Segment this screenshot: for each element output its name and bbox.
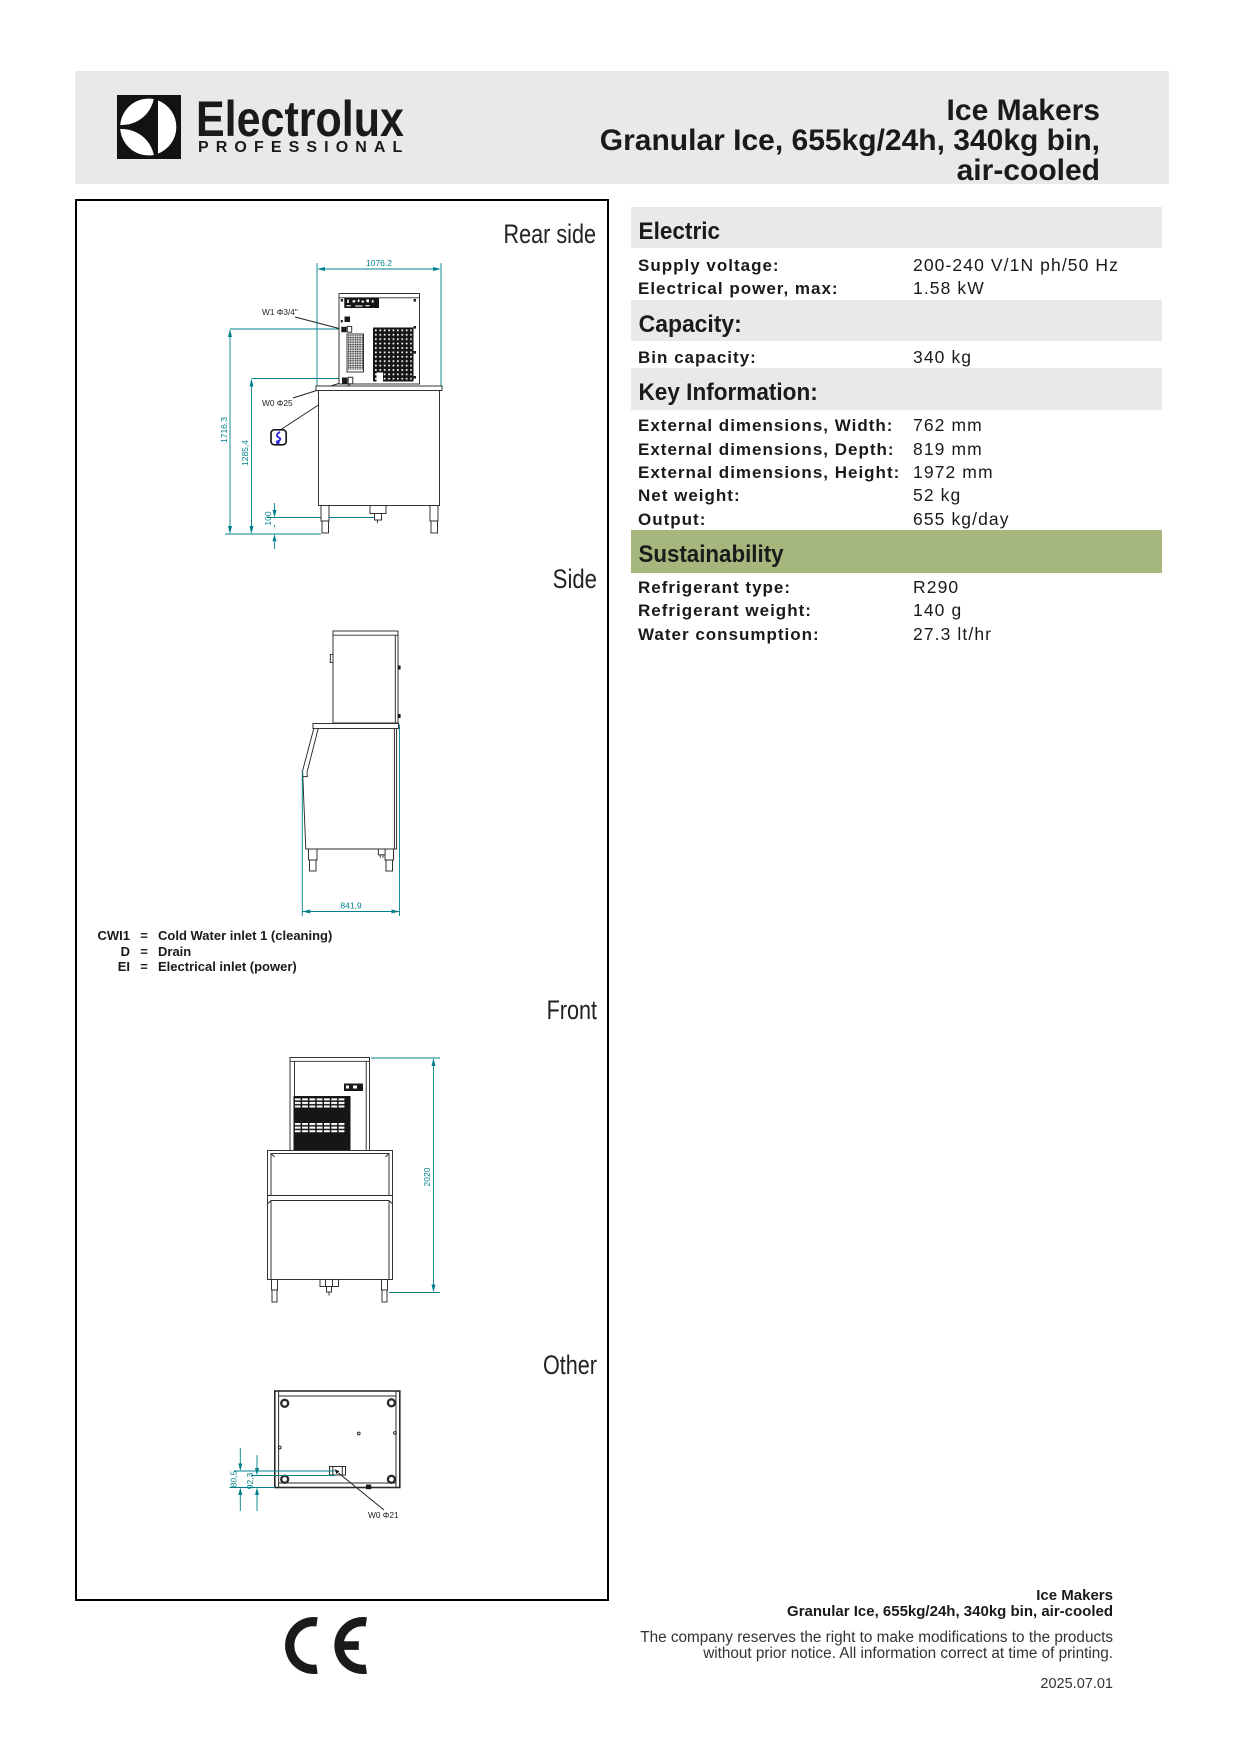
svg-text:W1 Φ3/4": W1 Φ3/4" xyxy=(262,307,298,317)
svg-text:2020: 2020 xyxy=(422,1167,432,1186)
svg-text:92,3: 92,3 xyxy=(245,1472,255,1489)
svg-text:W0 Φ21: W0 Φ21 xyxy=(368,1510,399,1520)
svg-text:80,5: 80,5 xyxy=(229,1470,239,1487)
svg-text:1076.2: 1076.2 xyxy=(366,258,392,268)
svg-text:1716.3: 1716.3 xyxy=(219,417,229,443)
svg-text:100: 100 xyxy=(263,511,273,525)
svg-text:1285,4: 1285,4 xyxy=(240,440,250,466)
svg-text:841,9: 841,9 xyxy=(340,901,362,911)
svg-text:W0 Φ25: W0 Φ25 xyxy=(262,398,293,408)
